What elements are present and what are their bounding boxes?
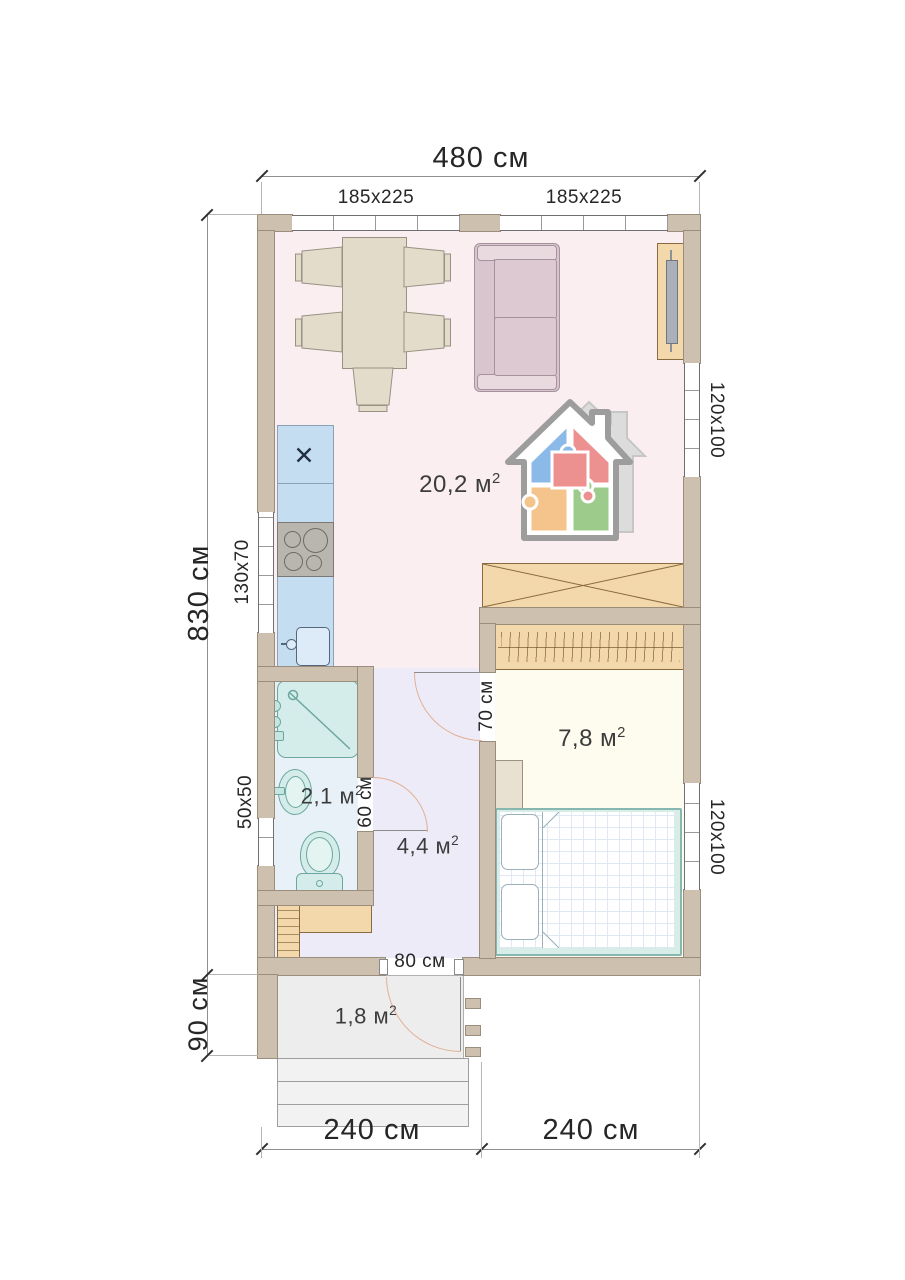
hallway-area-label: 4,4 м2: [353, 833, 503, 859]
area-value: 20,2: [419, 471, 468, 498]
area-unit: м: [436, 833, 452, 858]
storage-box-icon: [482, 563, 684, 608]
kitchen-x-icon: [295, 446, 313, 464]
window-top-right-label: 185x225: [524, 187, 644, 209]
step-line: [278, 1081, 468, 1082]
sofa-cushion: [494, 317, 557, 376]
shower-detail-icon: [278, 681, 358, 757]
wall-left: [258, 231, 274, 512]
area-unit: м: [475, 471, 492, 498]
window-bedroom: [684, 783, 700, 890]
porch-area-label: 1,8 м2: [291, 1003, 441, 1029]
total-height-label: 830 см: [184, 518, 214, 668]
area-value: 2,1: [301, 783, 333, 808]
sofa-armrest: [477, 374, 557, 390]
area-exponent: 2: [451, 833, 459, 848]
sofa-cushion: [494, 259, 557, 319]
bedroom-area-label: 7,8 м2: [517, 725, 667, 753]
kitchen-faucet-icon: [286, 639, 297, 650]
dim-line: [262, 176, 700, 177]
dim-ext: [209, 1055, 258, 1056]
dim-ext: [699, 979, 700, 1158]
dim-ext: [261, 1127, 262, 1158]
porch-post: [466, 999, 480, 1008]
sofa-back: [477, 259, 495, 374]
pillow: [501, 814, 539, 870]
wall-bottom: [463, 958, 700, 975]
pillow: [501, 884, 539, 940]
step-line: [278, 1104, 468, 1105]
area-value: 1,8: [335, 1003, 367, 1028]
window-living: [684, 363, 700, 477]
chair-icon: [294, 311, 344, 353]
bedroom-door-label: 70 см: [475, 646, 499, 766]
dim-ext: [209, 974, 258, 975]
hanger-rail-icon: [498, 647, 683, 648]
area-value: 4,4: [397, 833, 429, 858]
dim-ext: [481, 1062, 482, 1158]
hall-cabinet: [299, 903, 372, 933]
window-living-label: 120x100: [706, 360, 726, 480]
chair-icon: [403, 311, 453, 353]
window-bathroom-label: 50x50: [236, 742, 256, 862]
entrance-door-label: 80 см: [360, 951, 480, 973]
nightstand: [495, 760, 523, 810]
living-room-area-label: 20,2 м2: [385, 471, 535, 499]
burner-icon: [284, 531, 301, 548]
area-unit: м: [340, 783, 356, 808]
chair-icon: [403, 246, 453, 288]
wall-right: [684, 231, 700, 363]
chair-icon: [352, 367, 394, 413]
wall-bedroom-divider: [480, 608, 700, 624]
burner-icon: [284, 552, 303, 571]
window-bedroom-label: 120x100: [706, 777, 726, 897]
window-top-left: [292, 215, 460, 231]
area-exponent: 2: [617, 725, 626, 741]
bottom-left-width-label: 240 см: [297, 1114, 447, 1147]
tv-screen: [666, 260, 678, 344]
burner-icon: [306, 555, 322, 571]
wardrobe-hangers: [495, 624, 686, 670]
dim-ext: [699, 182, 700, 214]
porch-post: [466, 1026, 480, 1035]
window-top-left-label: 185x225: [316, 187, 436, 209]
stove: [277, 522, 334, 577]
wall-top-right: [668, 215, 700, 231]
puzzle-house-logo-icon: [500, 392, 650, 544]
area-unit: м: [600, 725, 617, 752]
toilet-button-icon: [316, 880, 323, 887]
blanket-fold-icon: [543, 812, 559, 828]
blanket-edge: [542, 812, 543, 948]
hall-shoe-rack: [277, 903, 300, 960]
area-value: 7,8: [558, 725, 593, 752]
area-unit: м: [374, 1003, 390, 1028]
window-kitchen-label: 130x70: [233, 512, 253, 632]
wall-right: [684, 477, 700, 783]
dining-table: [342, 237, 407, 369]
wall-top-left: [258, 215, 292, 231]
area-exponent: 2: [389, 1003, 397, 1018]
kitchen-sink: [296, 627, 330, 666]
blanket-fold-icon: [543, 932, 559, 948]
bottom-right-width-label: 240 см: [516, 1114, 666, 1147]
porch-height-label: 90 см: [183, 939, 213, 1089]
window-kitchen: [258, 512, 274, 633]
total-width-label: 480 см: [406, 142, 556, 175]
dim-ext: [209, 214, 258, 215]
burner-icon: [303, 528, 328, 553]
porch-post: [466, 1048, 480, 1056]
wall-bathroom-bottom: [258, 891, 373, 905]
chair-icon: [294, 246, 344, 288]
shower: [277, 680, 359, 758]
window-bathroom: [258, 818, 274, 866]
wall-top-mid: [460, 215, 500, 231]
dim-ext: [261, 182, 262, 214]
wall-porch-left: [258, 975, 277, 1058]
floor-plan: 480 см 185x225 185x225 830 см 90 см 130x…: [0, 0, 905, 1280]
area-exponent: 2: [355, 783, 363, 798]
window-top-right: [500, 215, 668, 231]
area-exponent: 2: [492, 471, 501, 487]
toilet-seat: [306, 837, 333, 872]
bathroom-area-label: 2,1 м2: [257, 783, 407, 809]
wall-bathroom-top: [258, 667, 373, 681]
